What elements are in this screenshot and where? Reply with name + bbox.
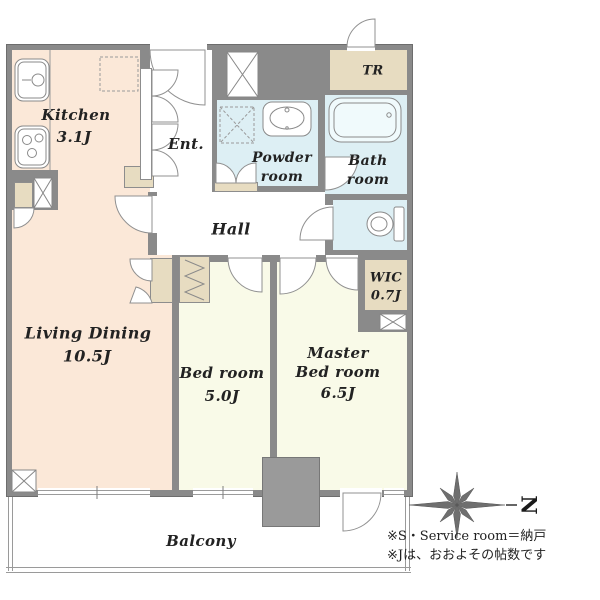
footnote-jou: ※Jは、おおよその帖数です xyxy=(387,546,546,565)
powder-room-label: Powder xyxy=(252,150,312,166)
bedroom-closet xyxy=(179,256,210,303)
living-window xyxy=(38,488,150,498)
entrance-floor xyxy=(150,50,212,192)
balcony-label: Balcony xyxy=(166,532,236,550)
kitchen-size: 3.1J xyxy=(57,128,92,146)
entrance-door-opening xyxy=(150,43,207,51)
floor-plan: N Kitchen 3.1J Ent. Powder room Bath roo… xyxy=(0,0,600,600)
bedroom-window xyxy=(193,488,253,498)
master-door-opening xyxy=(280,255,316,263)
trunk-room-label: TR xyxy=(362,64,383,79)
balcony-door-opening xyxy=(340,488,382,498)
hall-label: Hall xyxy=(211,220,250,239)
alcove-cabinet xyxy=(14,182,33,208)
entrance-closet xyxy=(140,68,152,180)
bath-room-label: Bath xyxy=(348,153,387,169)
footnotes: ※S・Service room＝納戸 ※Jは、おおよその帖数です xyxy=(387,527,546,565)
balcony-column xyxy=(262,457,320,527)
north-letter: N xyxy=(517,495,542,514)
wic-door-opening xyxy=(326,255,358,263)
footnote-service-room: ※S・Service room＝納戸 xyxy=(387,527,546,546)
powder-threshold xyxy=(214,182,258,192)
powder-room-label: room xyxy=(261,169,303,185)
toilet-floor xyxy=(333,200,407,250)
balcony-rail-left xyxy=(8,497,13,571)
kitchen-label: Kitchen xyxy=(42,106,111,124)
balcony-door-arc xyxy=(343,493,381,531)
wic-label: WIC xyxy=(370,271,402,286)
bedroom-label: Bed room xyxy=(180,364,265,382)
master-bedroom-label: Bed room xyxy=(296,363,381,381)
balcony-rail-bottom xyxy=(6,567,411,573)
master-bedroom-size: 6.5J xyxy=(321,384,356,402)
living-dining-label: Living Dining xyxy=(25,324,152,343)
bedroom-door-opening xyxy=(228,255,262,263)
living-side-storage xyxy=(150,258,173,303)
living-dining-size: 10.5J xyxy=(63,347,112,366)
living-door-opening xyxy=(148,196,157,233)
trunk-room-door-opening xyxy=(347,43,375,51)
north-indicator: N xyxy=(506,495,542,514)
bath-room-label: room xyxy=(347,172,389,188)
wic-size: 0.7J xyxy=(371,289,401,304)
bedroom-size: 5.0J xyxy=(205,387,240,405)
toilet-door-opening xyxy=(325,205,333,238)
master-bedroom-label: Master xyxy=(307,344,369,362)
entrance-label: Ent. xyxy=(168,135,204,153)
master-window xyxy=(384,488,404,498)
